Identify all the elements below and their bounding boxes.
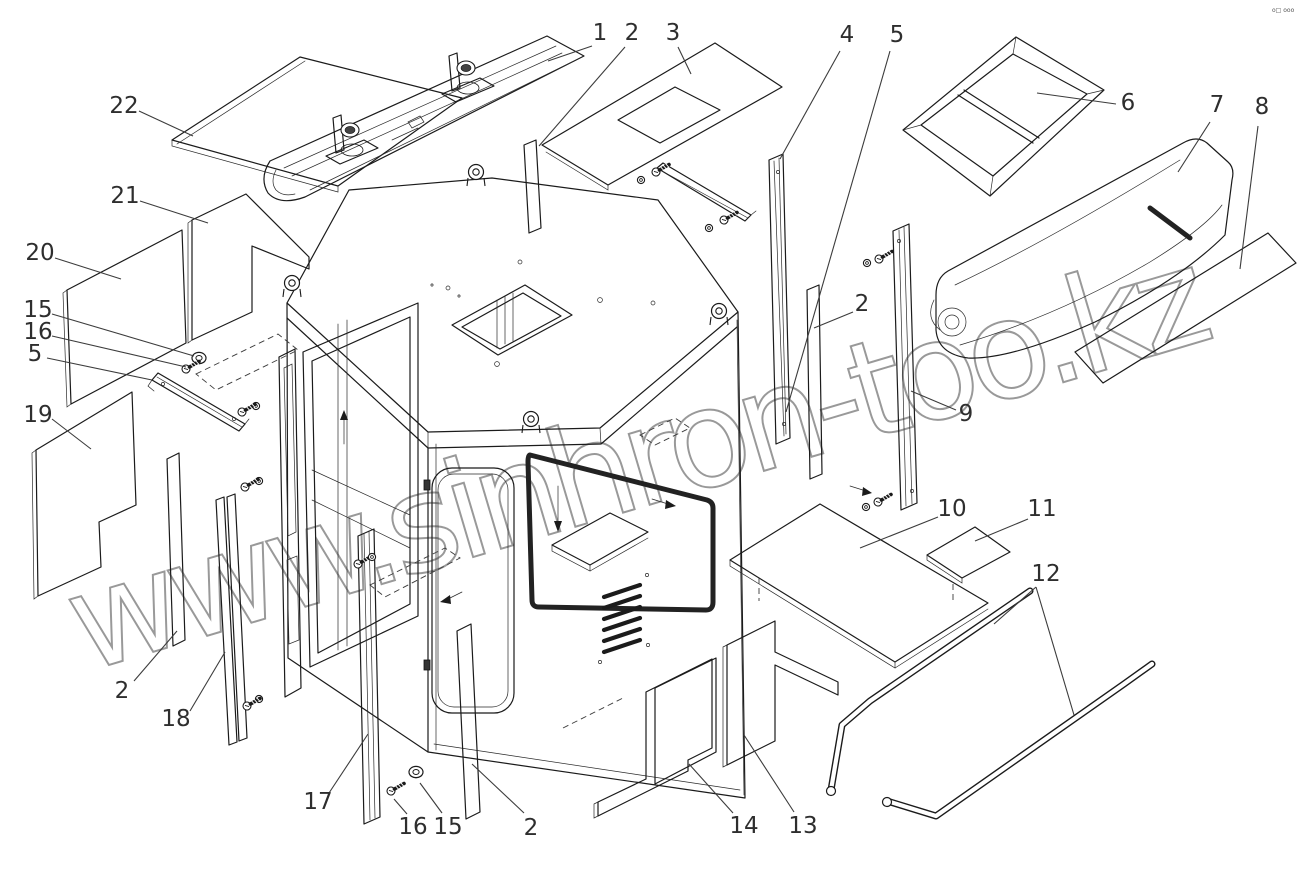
- callout-12: 12: [1031, 561, 1060, 587]
- part-13-panel: [723, 621, 838, 767]
- leader-line: [55, 258, 121, 279]
- callout-18: 18: [161, 706, 190, 732]
- callout-21: 21: [110, 183, 139, 209]
- leader-line: [975, 519, 1028, 541]
- part-2-strip-top: [524, 140, 541, 233]
- part-1-roof-rail-tray: [264, 36, 584, 201]
- part-2-strip-door: [457, 624, 480, 819]
- callout-14: 14: [729, 813, 758, 839]
- callout-16: 16: [398, 814, 427, 840]
- part-5-rail-left: [148, 373, 263, 492]
- leader-line: [52, 419, 91, 449]
- leader-line: [1036, 587, 1074, 715]
- leader-line: [394, 799, 407, 814]
- leader-line: [139, 111, 193, 136]
- callout-7: 7: [1210, 92, 1225, 118]
- callout-11: 11: [1027, 496, 1056, 522]
- part-20-panel: [63, 230, 186, 407]
- exploded-diagram: www.sinhron-too.kz o□ ooo: [0, 0, 1313, 874]
- diagram-page: www.sinhron-too.kz o□ ooo: [0, 0, 1313, 874]
- part-21-panel: [188, 194, 309, 343]
- callout-17: 17: [303, 789, 332, 815]
- callout-13: 13: [788, 813, 817, 839]
- leader-line: [1037, 93, 1116, 104]
- callout-8: 8: [1255, 94, 1270, 120]
- callout-9: 9: [959, 401, 974, 427]
- leader-line: [52, 314, 194, 356]
- leader-line: [860, 517, 938, 548]
- leader-line: [994, 587, 1036, 624]
- leader-line: [689, 764, 733, 813]
- callout-2: 2: [855, 291, 870, 317]
- part-6-hatch-frame: [903, 37, 1104, 196]
- leader-line: [780, 51, 840, 159]
- callout-5: 5: [890, 22, 905, 48]
- leader-line: [420, 783, 442, 813]
- leader-line: [52, 336, 186, 367]
- callout-10: 10: [937, 496, 966, 522]
- part-4-retainer-rail: [637, 161, 756, 232]
- callout-5: 5: [28, 341, 43, 367]
- leader-line: [1178, 122, 1210, 172]
- leader-line: [1240, 126, 1258, 269]
- callout-15: 15: [433, 814, 462, 840]
- callout-6: 6: [1121, 90, 1136, 116]
- callout-20: 20: [25, 240, 54, 266]
- callout-2: 2: [115, 678, 130, 704]
- callout-4: 4: [840, 22, 855, 48]
- leader-line: [140, 201, 208, 223]
- callout-2: 2: [524, 815, 539, 841]
- callout-3: 3: [666, 20, 681, 46]
- callout-19: 19: [23, 402, 52, 428]
- callout-1: 1: [593, 20, 608, 46]
- corner-mark: o□ ooo: [1272, 7, 1295, 14]
- part-12-handrails: [827, 591, 1153, 816]
- part-14-panel: [594, 659, 712, 818]
- leader-line: [539, 47, 625, 146]
- callout-22: 22: [109, 93, 138, 119]
- callout-2: 2: [625, 20, 640, 46]
- leader-line: [744, 735, 794, 812]
- leader-line: [678, 47, 691, 74]
